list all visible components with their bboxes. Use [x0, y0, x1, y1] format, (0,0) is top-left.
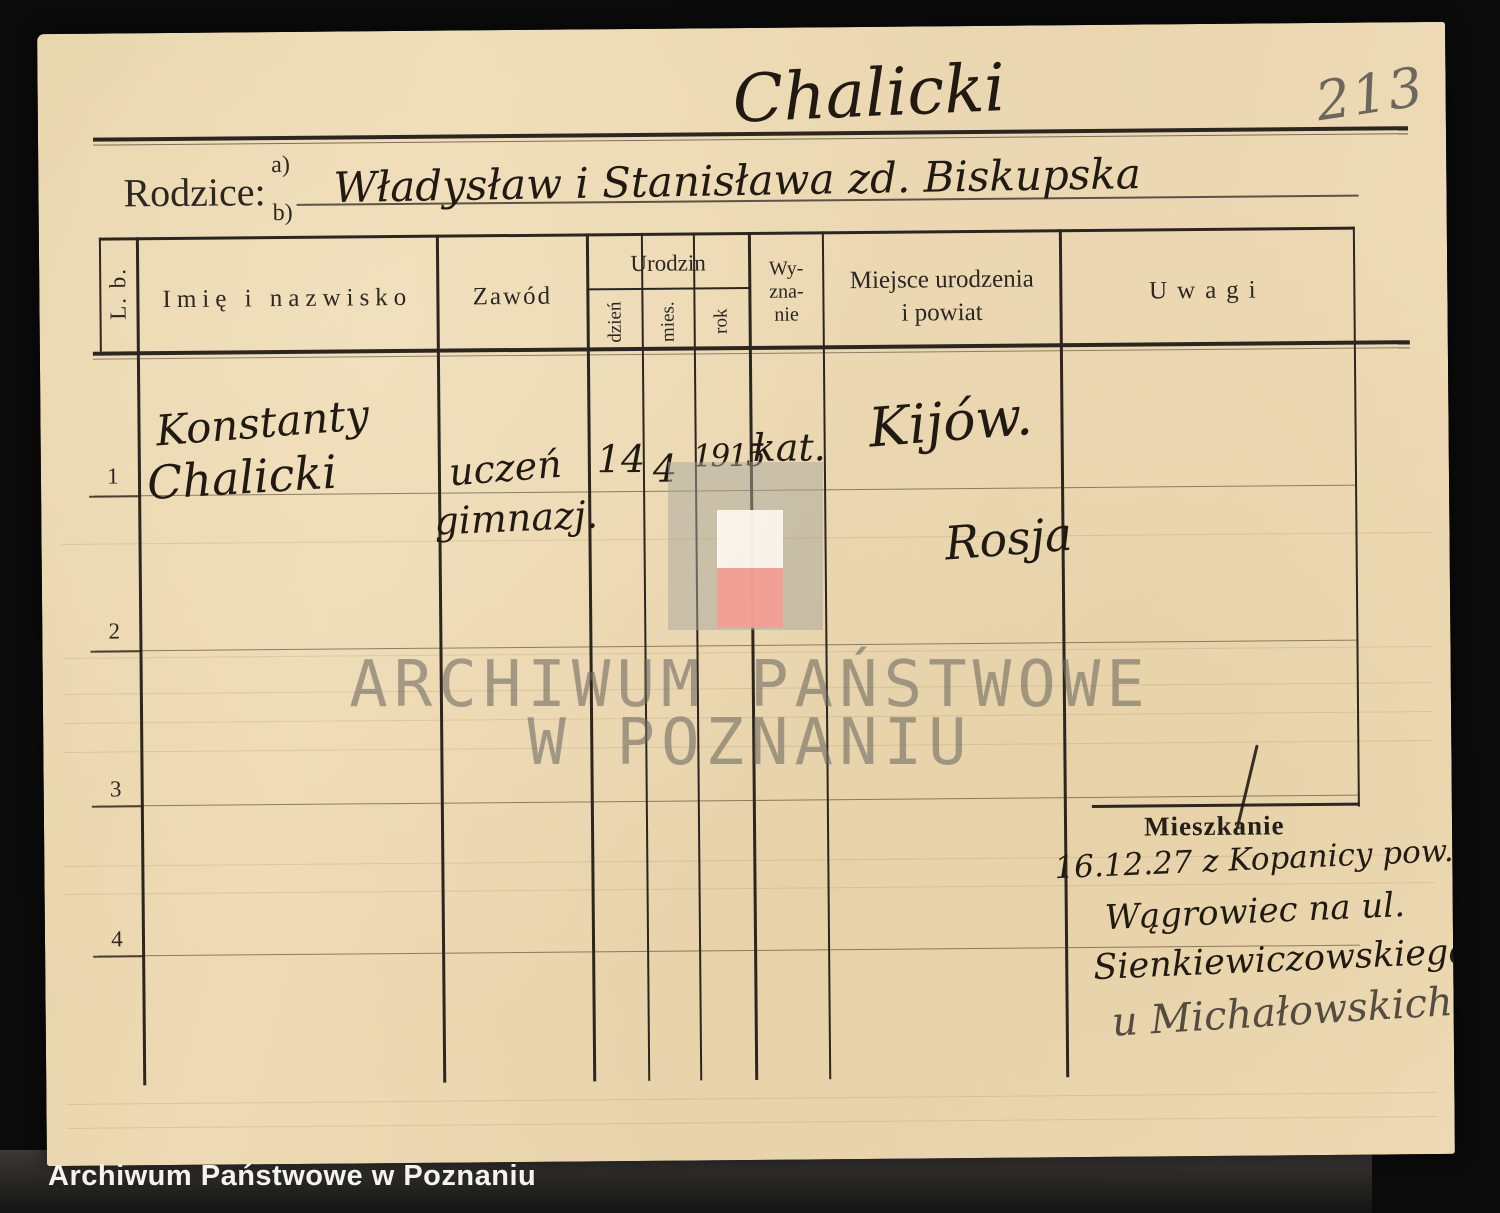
- header-religion: Wy- zna- nie: [749, 257, 824, 327]
- row-number-underline: [92, 805, 144, 807]
- row-number: 1: [93, 463, 133, 489]
- entry-birthplace-country: Rosja: [943, 507, 1074, 571]
- header-birthplace: Miejsce urodzenia i powiat: [823, 262, 1061, 330]
- residence-note-line: Wągrowiec na ul.: [1104, 885, 1406, 938]
- entry-first-name: Konstanty: [154, 390, 371, 456]
- residence-note-line-pencil: u Michałowskich: [1111, 979, 1454, 1046]
- residence-note-line: Sienkiewiczowskiego 2: [1093, 930, 1455, 988]
- watermark-logo-white-square: [717, 510, 783, 568]
- header-lb: L. b.: [105, 243, 132, 343]
- header-religion-line: zna-: [749, 280, 823, 304]
- row-number: 2: [94, 618, 134, 644]
- parents-b-label: b): [273, 200, 293, 227]
- header-birth-group: Urodzin: [587, 250, 749, 277]
- header-remarks: Uwagi: [1060, 276, 1354, 307]
- residence-note-line: 16.12.27 z Kopanicy pow.: [1054, 833, 1454, 886]
- page-number-pencil: 213: [1312, 55, 1429, 133]
- header-birth-month: mies.: [657, 282, 680, 362]
- header-birth-day: dzień: [604, 282, 627, 362]
- table-top-border: [99, 227, 1355, 241]
- entry-profession-line1: uczeń: [447, 442, 563, 495]
- header-birthplace-line: Miejsce urodzenia: [823, 262, 1060, 297]
- header-birth-year: rok: [710, 281, 733, 361]
- header-birthplace-line: i powiat: [823, 295, 1060, 330]
- entry-profession-line2: gimnazj.: [433, 492, 598, 543]
- residence-heading: Mieszkanie: [1144, 810, 1285, 842]
- archive-caption: Archiwum Państwowe w Poznaniu: [48, 1160, 536, 1193]
- row-number-underline: [93, 955, 145, 957]
- paper-line: [67, 1116, 1437, 1129]
- watermark-logo-red-square: [717, 568, 783, 628]
- row-number-underline: [89, 495, 141, 497]
- paper-line: [66, 1092, 1436, 1105]
- remarks-section-rule: [1092, 803, 1360, 808]
- watermark-text-line2: W POZNANIU: [0, 706, 1500, 780]
- parents-value-handwritten: Władysław i Stanisława zd. Biskupska: [333, 149, 1141, 212]
- table-vline: [99, 238, 102, 352]
- row-number: 3: [96, 776, 136, 802]
- scanned-document: Chalicki 213 Rodzice: a) b) Władysław i …: [0, 0, 1500, 1213]
- surname-title-handwritten: Chalicki: [731, 49, 1007, 138]
- header-religion-line: nie: [749, 303, 823, 327]
- entry-birthplace-city: Kijów.: [866, 384, 1034, 460]
- entry-surname: Chalicki: [145, 445, 338, 511]
- row-number: 4: [97, 926, 137, 952]
- parents-a-label: a): [271, 152, 290, 179]
- header-name: Imię i nazwisko: [137, 284, 437, 315]
- header-profession: Zawód: [437, 282, 587, 311]
- entry-birth-day: 14: [597, 437, 646, 481]
- header-religion-line: Wy-: [749, 257, 823, 281]
- parents-label: Rodzice:: [123, 168, 266, 216]
